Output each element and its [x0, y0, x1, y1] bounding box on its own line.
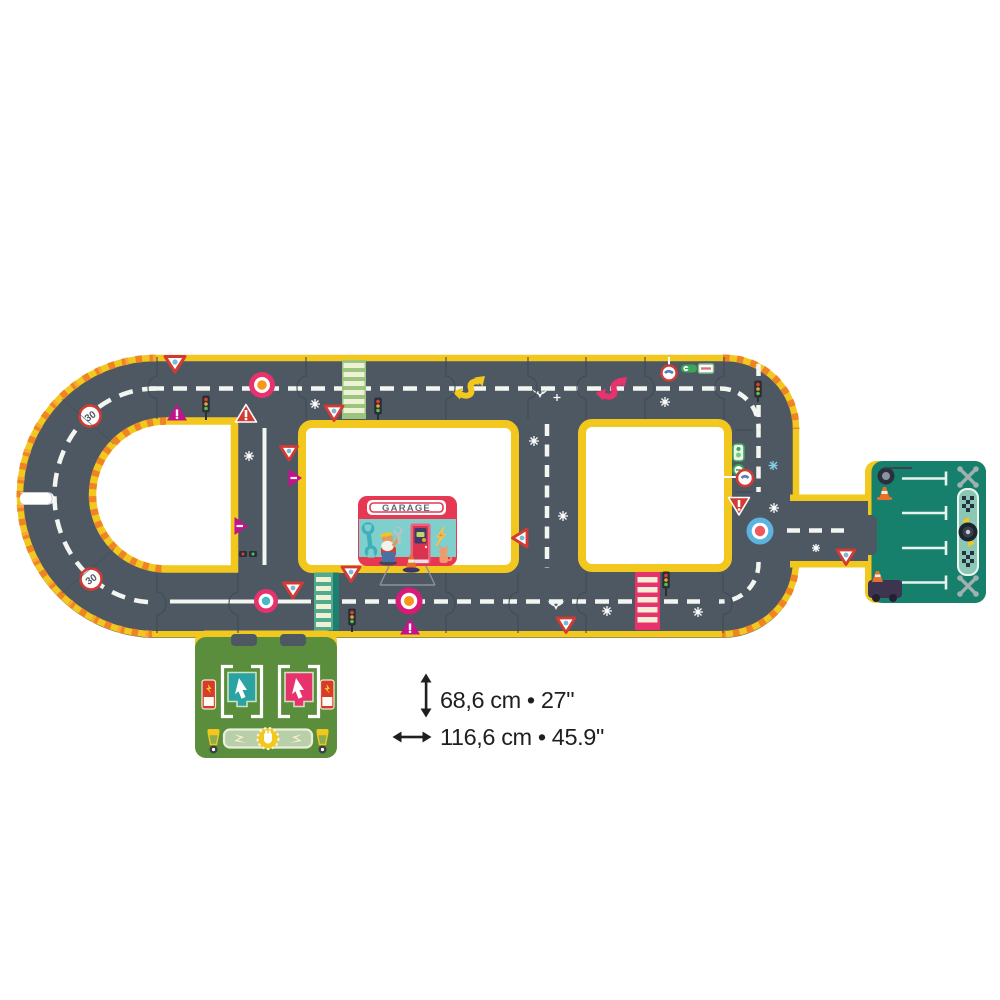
svg-text:68,6 cm • 27": 68,6 cm • 27" [440, 687, 574, 713]
svg-text:GARAGE: GARAGE [382, 503, 431, 514]
svg-text:116,6 cm • 45.9": 116,6 cm • 45.9" [440, 724, 604, 750]
